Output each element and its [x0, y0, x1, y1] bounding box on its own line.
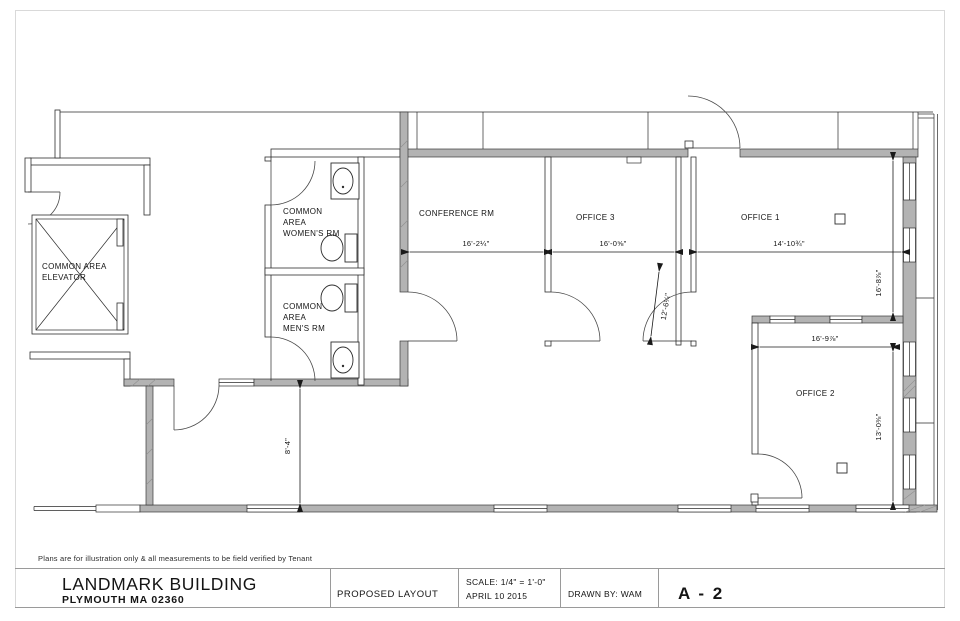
dimension-office2-depth: 13'-0⅜"	[874, 352, 893, 501]
mens-room-label: COMMON AREA MEN'S RM	[283, 302, 325, 333]
disclaimer-text: Plans are for illustration only & all me…	[38, 554, 313, 563]
building-address: PLYMOUTH MA 02360	[62, 594, 185, 606]
dimension-office1-width: 14'-10¾"	[698, 239, 901, 252]
dimension-office2-width: 16'-9⅞"	[760, 334, 891, 347]
dimension-office1-depth: 16'-8⅞"	[874, 161, 893, 312]
east-wall	[903, 114, 938, 512]
office1-label: OFFICE 1	[741, 213, 780, 222]
title-block-scale-cell: SCALE: 1/4" = 1'-0" APRIL 10 2015	[466, 577, 546, 601]
svg-text:MEN'S RM: MEN'S RM	[283, 324, 325, 333]
hallway-walls	[57, 112, 933, 149]
svg-text:ELEVATOR: ELEVATOR	[42, 273, 86, 282]
conference-door	[408, 292, 457, 341]
office2-door	[751, 454, 802, 502]
svg-text:WOMEN'S RM: WOMEN'S RM	[283, 229, 340, 238]
corridor-door	[174, 386, 219, 430]
office3-label: OFFICE 3	[576, 213, 615, 222]
dimension-corridor-depth: 8'-4"	[283, 389, 300, 503]
mens-room-door	[271, 337, 315, 381]
hallway-entry-door	[685, 96, 740, 148]
svg-text:14'-10¾": 14'-10¾"	[773, 239, 805, 248]
svg-text:16'-2¼": 16'-2¼"	[462, 239, 489, 248]
womens-toilet	[321, 234, 357, 262]
drawn-by-text: DRAWN BY: WAM	[568, 589, 642, 599]
mens-sink	[331, 342, 359, 378]
office2-walls	[752, 316, 903, 505]
womens-room-label: COMMON AREA WOMEN'S RM	[283, 207, 340, 238]
title-block: Plans are for illustration only & all me…	[15, 554, 945, 608]
conference-room-label: CONFERENCE RM	[419, 209, 494, 218]
south-wall	[34, 505, 937, 512]
svg-text:16'-8⅞": 16'-8⅞"	[874, 269, 883, 296]
north-wall	[271, 149, 918, 163]
office1-outlet-symbol	[835, 214, 845, 224]
drawing-sheet: COMMON AREA ELEVATOR	[0, 0, 960, 621]
dimension-conference-width: 16'-2¼"	[410, 239, 543, 252]
svg-text:13'-0⅜": 13'-0⅜"	[874, 413, 883, 440]
floor-plan: COMMON AREA ELEVATOR	[25, 96, 938, 512]
womens-room-door	[271, 161, 315, 205]
sheet-number: A - 2	[678, 584, 724, 603]
wall-hatch	[132, 140, 936, 512]
floor-plan-svg: COMMON AREA ELEVATOR	[0, 0, 960, 621]
title-block-project-cell: LANDMARK BUILDING PLYMOUTH MA 02360	[62, 574, 257, 606]
svg-text:AREA: AREA	[283, 218, 306, 227]
svg-text:COMMON AREA: COMMON AREA	[42, 262, 107, 271]
building-name: LANDMARK BUILDING	[62, 574, 257, 594]
sheet-frame	[16, 11, 945, 608]
office2-label: OFFICE 2	[796, 389, 835, 398]
svg-text:16'-0⅝": 16'-0⅝"	[599, 239, 626, 248]
svg-text:12'-6¼": 12'-6¼"	[659, 292, 673, 320]
scale-text: SCALE: 1/4" = 1'-0"	[466, 577, 546, 587]
svg-text:16'-9⅞": 16'-9⅞"	[811, 334, 838, 343]
svg-text:8'-4": 8'-4"	[283, 438, 292, 454]
office3-door	[551, 292, 600, 341]
dimension-office3-width: 16'-0⅝"	[553, 239, 674, 252]
date-text: APRIL 10 2015	[466, 591, 527, 601]
svg-text:COMMON: COMMON	[283, 302, 322, 311]
womens-sink	[331, 163, 359, 199]
svg-text:AREA: AREA	[283, 313, 306, 322]
svg-text:COMMON: COMMON	[283, 207, 322, 216]
drawing-title: PROPOSED LAYOUT	[337, 589, 438, 600]
mens-toilet	[321, 284, 357, 312]
dimension-door-diagonal: 12'-6¼"	[651, 272, 672, 336]
office2-outlet-symbol	[837, 463, 847, 473]
